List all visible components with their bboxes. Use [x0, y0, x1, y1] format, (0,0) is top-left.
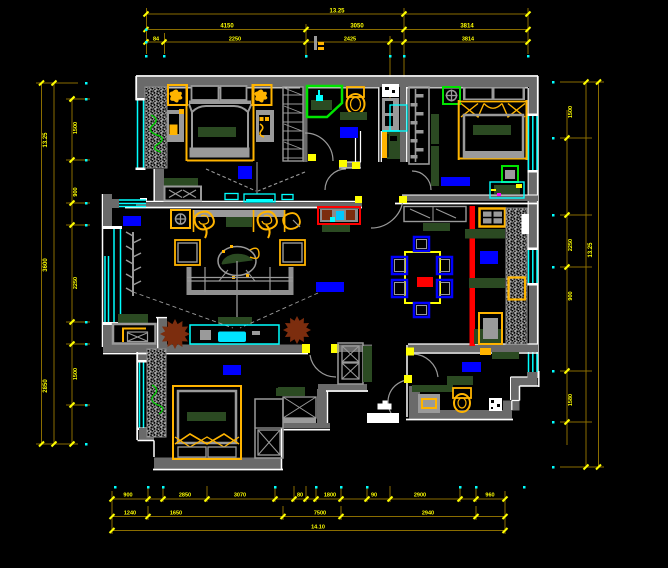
svg-text:900: 900 — [73, 187, 79, 196]
svg-text:4150: 4150 — [220, 24, 234, 30]
svg-text:1500: 1500 — [568, 106, 574, 118]
svg-text:7500: 7500 — [314, 511, 326, 517]
svg-text:3050: 3050 — [350, 24, 364, 30]
svg-text:13.25: 13.25 — [329, 9, 345, 15]
svg-text:960: 960 — [485, 493, 494, 499]
svg-text:90: 90 — [371, 493, 377, 499]
svg-text:1800: 1800 — [324, 493, 336, 499]
svg-text:13.25: 13.25 — [588, 242, 594, 258]
svg-text:2425: 2425 — [344, 37, 356, 43]
svg-text:2250: 2250 — [568, 239, 574, 251]
svg-text:2940: 2940 — [422, 511, 434, 517]
svg-text:1500: 1500 — [73, 368, 79, 380]
svg-text:3814: 3814 — [460, 24, 474, 30]
svg-text:13.25: 13.25 — [43, 132, 49, 148]
svg-text:900: 900 — [568, 291, 574, 300]
svg-text:1580: 1580 — [568, 394, 574, 406]
svg-text:2850: 2850 — [179, 493, 191, 499]
svg-text:2250: 2250 — [229, 37, 241, 43]
svg-text:3814: 3814 — [462, 37, 475, 43]
svg-text:1500: 1500 — [73, 122, 79, 134]
svg-text:2850: 2850 — [43, 379, 49, 393]
svg-text:3070: 3070 — [234, 493, 246, 499]
svg-text:900: 900 — [123, 493, 132, 499]
svg-text:14.10: 14.10 — [311, 525, 325, 531]
svg-text:84: 84 — [153, 37, 160, 43]
svg-text:1240: 1240 — [124, 511, 136, 517]
svg-text:80: 80 — [297, 493, 303, 499]
svg-text:1650: 1650 — [170, 511, 182, 517]
svg-text:3600: 3600 — [43, 258, 49, 272]
svg-text:2900: 2900 — [414, 493, 426, 499]
svg-text:2250: 2250 — [73, 277, 79, 289]
